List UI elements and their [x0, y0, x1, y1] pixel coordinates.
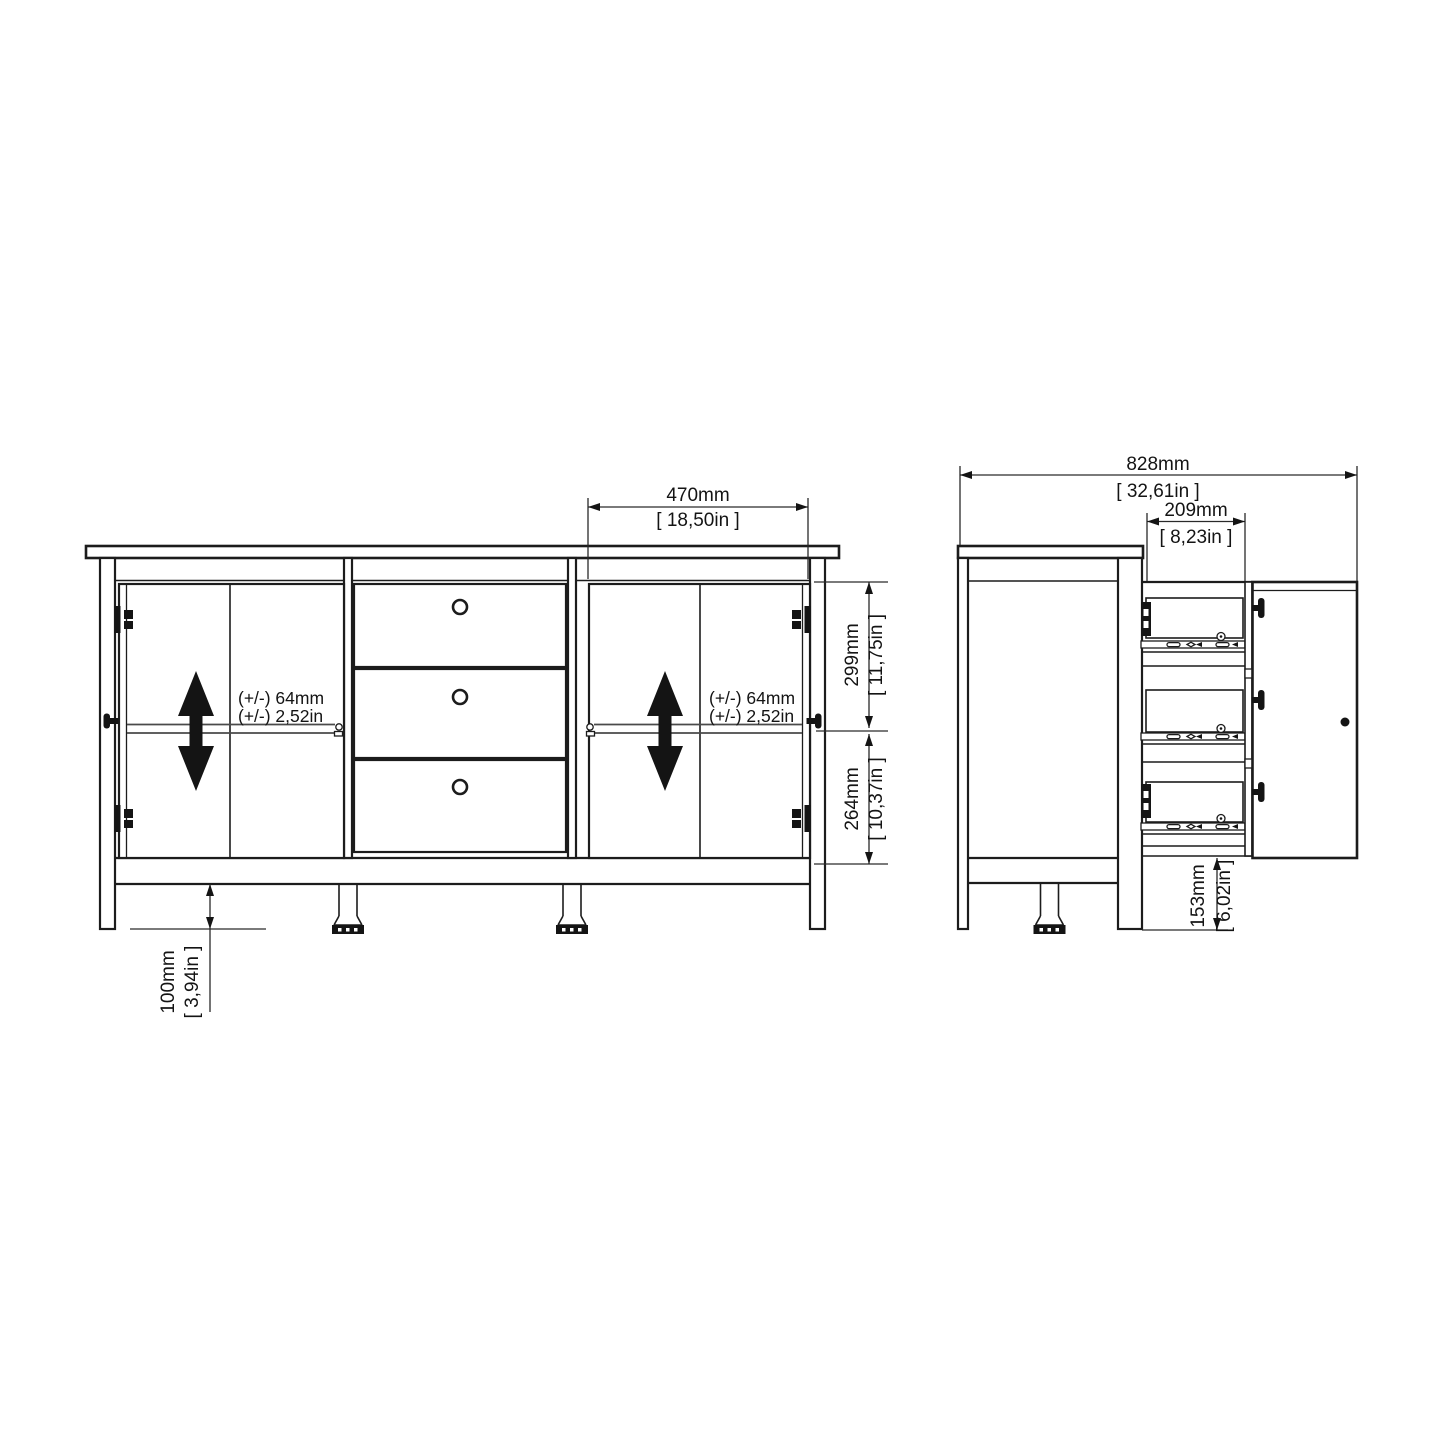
left-shelf-tolerance-mm: (+/-) 64mm: [238, 688, 324, 708]
side-leg: [1034, 884, 1066, 934]
side-drawer-box-1: [1146, 598, 1243, 638]
dim-drawer-depth-mm: 209mm: [1164, 500, 1227, 521]
side-top-panel: [958, 546, 1143, 558]
drawer-front-1: [354, 584, 566, 667]
side-drawer-front-plane: [1245, 582, 1252, 856]
slide-bracket-3: [1141, 784, 1151, 818]
front-right-side-panel: [810, 558, 825, 929]
dim-drawer-depth-in: [ 8,23in ]: [1160, 527, 1233, 548]
front-top-panel: [86, 546, 839, 558]
side-drawer-box-3: [1146, 782, 1243, 822]
drawer-front-2: [354, 669, 566, 758]
slide-bracket-1: [1141, 602, 1151, 636]
left-shelf-support: [335, 732, 343, 737]
drawer-knob-1: [453, 600, 467, 614]
front-divider-left: [344, 558, 352, 858]
dim-floor-clearance: 153mm [ 6,02in ]: [1142, 858, 1235, 932]
dim-upper-height-mm: 299mm: [842, 623, 863, 686]
drawer-knob-2: [453, 690, 467, 704]
dim-lower-height-in: [ 10,37in ]: [866, 757, 887, 840]
dim-drawer-depth: 209mm [ 8,23in ]: [1147, 500, 1245, 581]
side-drawer-box-2: [1146, 690, 1243, 732]
dim-lower-height-mm: 264mm: [842, 767, 863, 830]
dim-bay-width-in: [ 18,50in ]: [656, 510, 739, 531]
dim-floor-clearance-mm: 153mm: [1188, 864, 1209, 927]
dim-leg-height: 100mm [ 3,94in ]: [130, 884, 266, 1018]
front-view: (+/-) 64mm (+/-) 2,52in (+/-) 64mm: [86, 485, 888, 1018]
front-right-center-leg: [556, 884, 588, 934]
left-shelf-tolerance-in: (+/-) 2,52in: [238, 706, 323, 726]
side-door-knob: [1341, 718, 1350, 727]
dim-open-depth-in: [ 32,61in ]: [1116, 481, 1199, 502]
dim-upper-height-in: [ 11,75in ]: [866, 614, 887, 696]
dim-bay-width-mm: 470mm: [666, 485, 729, 506]
side-view: 828mm [ 32,61in ] 209mm [ 8,23in ] 153mm…: [958, 454, 1357, 934]
drawer-front-3: [354, 760, 566, 852]
side-front-upright: [1118, 558, 1142, 929]
front-drawer-bay: [354, 584, 566, 852]
right-shelf-support: [587, 732, 595, 737]
front-left-side-panel: [100, 558, 115, 929]
sideboard-dimension-drawing: (+/-) 64mm (+/-) 2,52in (+/-) 64mm: [0, 0, 1445, 1445]
dim-floor-clearance-in: [ 6,02in ]: [1214, 860, 1235, 933]
front-left-door-compartment: (+/-) 64mm (+/-) 2,52in: [104, 584, 345, 858]
dim-open-depth-mm: 828mm: [1126, 454, 1189, 475]
drawer-knob-3: [453, 780, 467, 794]
front-left-center-leg: [332, 884, 364, 934]
technical-drawing-page: (+/-) 64mm (+/-) 2,52in (+/-) 64mm: [0, 0, 1445, 1445]
dim-leg-height-in: [ 3,94in ]: [182, 946, 203, 1019]
front-right-door-compartment: (+/-) 64mm (+/-) 2,52in: [587, 584, 822, 858]
left-shelf-pin: [336, 724, 342, 730]
side-drawer-column: [1141, 582, 1256, 856]
right-shelf-pin: [587, 724, 593, 730]
dim-leg-height-mm: 100mm: [158, 950, 179, 1013]
right-shelf-tolerance-in: (+/-) 2,52in: [709, 706, 794, 726]
side-back-edge: [958, 558, 968, 929]
front-divider-right: [568, 558, 576, 858]
right-shelf-tolerance-mm: (+/-) 64mm: [709, 688, 795, 708]
dim-bay-width: 470mm [ 18,50in ]: [588, 485, 808, 579]
dim-open-depth: 828mm [ 32,61in ]: [960, 454, 1357, 581]
